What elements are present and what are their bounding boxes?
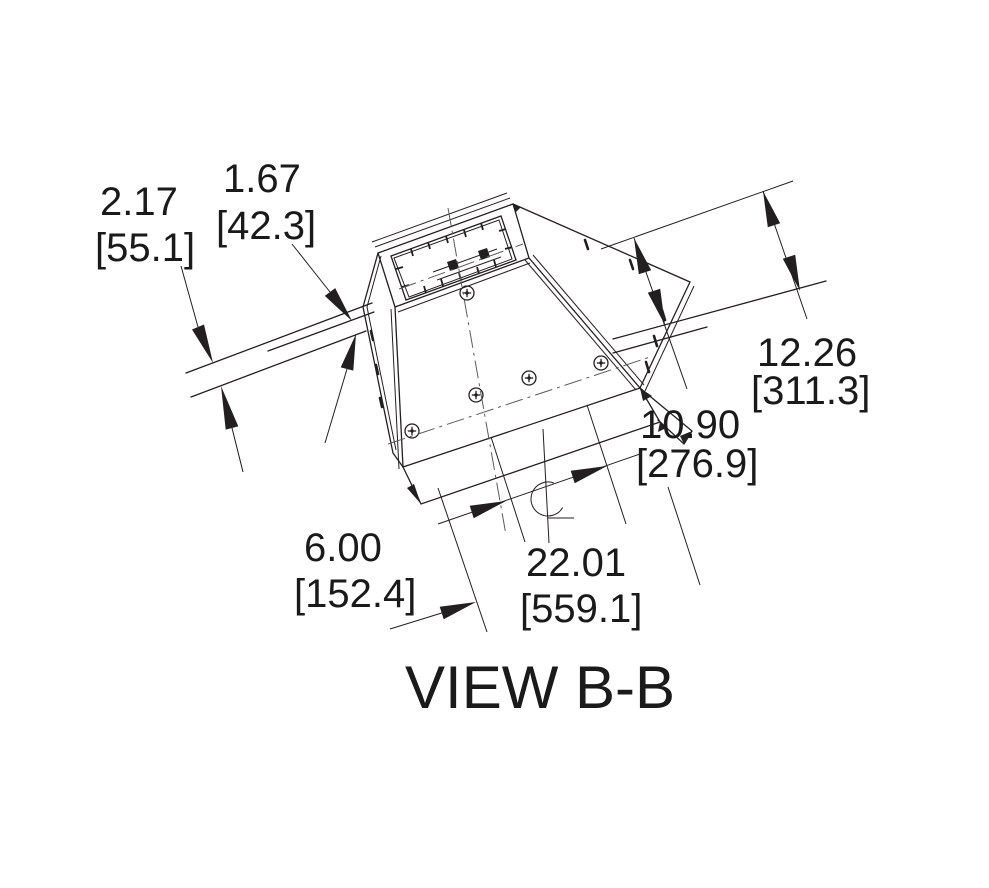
curb-top-band xyxy=(372,193,530,312)
dimension-arrow xyxy=(192,325,213,364)
dimension-arrow xyxy=(470,501,506,518)
dimension-arrow xyxy=(440,602,476,619)
deck-second-line xyxy=(268,312,374,351)
leader-line xyxy=(232,428,243,472)
leader-line xyxy=(181,266,198,327)
top-extension-line xyxy=(601,181,793,249)
view-label: VIEW B-B xyxy=(405,654,675,721)
plate-clip-right xyxy=(478,248,490,260)
screw-front-4 xyxy=(594,356,608,370)
dimension-arrow xyxy=(634,238,651,274)
right-panel-top-slots xyxy=(585,240,633,269)
dimension-arrow xyxy=(571,466,607,483)
front-right-hem-b xyxy=(525,260,636,390)
dim-value-mm: [311.3] xyxy=(751,369,870,413)
dim-value-mm: [559.1] xyxy=(520,587,642,631)
front-right-hem-c xyxy=(533,255,644,385)
centerlines xyxy=(388,208,650,535)
left-panel-slots xyxy=(371,331,382,407)
dim-height-high: 12.26 [311.3] xyxy=(751,191,870,413)
extension-line-left xyxy=(491,437,525,542)
technical-drawing: 2.17 [55.1] 1.67 [42.3] 12.26 [311.3] 10… xyxy=(0,0,989,888)
roof-deck-lines xyxy=(186,281,826,397)
centerline-symbol xyxy=(531,429,574,543)
leader-line xyxy=(325,369,347,443)
dim-deck-panel: 1.67 [42.3] xyxy=(216,157,356,443)
front-panel xyxy=(391,255,644,469)
dim-value-in: 2.17 xyxy=(100,180,178,224)
dim-offset: 6.00 [152.4] xyxy=(294,488,487,632)
dim-value-in: 22.01 xyxy=(526,541,626,585)
dim-value-in: 1.67 xyxy=(223,157,301,201)
dim-height-low: 10.90 [276.9] xyxy=(634,238,758,585)
centerline-horizontal xyxy=(388,357,650,444)
dimension-arrow xyxy=(763,191,780,227)
dim-value-mm: [276.9] xyxy=(636,442,758,486)
plate-slots-sides xyxy=(396,229,512,287)
dimension-arrow xyxy=(648,289,665,325)
leader-line xyxy=(292,244,330,292)
front-left-edge xyxy=(395,307,403,467)
dim-value-in: 10.90 xyxy=(640,403,740,447)
extension-line-right xyxy=(587,405,626,524)
dim-value-mm: [152.4] xyxy=(294,572,416,616)
centerline-vertical xyxy=(448,208,506,535)
top-band-hem-1 xyxy=(375,198,510,247)
left-panel-inner xyxy=(367,256,396,450)
dim-value-mm: [42.3] xyxy=(216,204,316,248)
drawing-page: 2.17 [55.1] 1.67 [42.3] 12.26 [311.3] 10… xyxy=(0,0,989,888)
deck-bottom-line xyxy=(191,331,366,397)
corner-shadow-3 xyxy=(407,484,421,504)
dimension-arrow xyxy=(783,255,800,291)
plate-clip-left xyxy=(447,259,459,271)
dimension-arrow xyxy=(221,386,238,430)
deck-extension-right-lower xyxy=(613,327,707,353)
screw-top-band xyxy=(460,286,474,300)
dim-value-in: 6.00 xyxy=(304,526,382,570)
dimension-line-continued xyxy=(668,487,700,585)
top-band-hem-2 xyxy=(372,193,507,242)
front-right-hem-a xyxy=(529,258,640,388)
screw-front-3 xyxy=(522,371,536,385)
dim-value-mm: [55.1] xyxy=(95,226,195,270)
